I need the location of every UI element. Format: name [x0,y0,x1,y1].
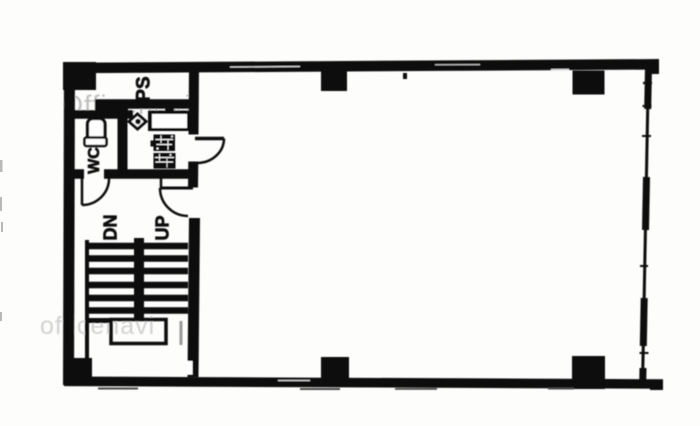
svg-text:UP: UP [153,215,173,240]
svg-text:WC: WC [86,147,103,174]
svg-text:PS: PS [134,76,155,101]
svg-text:DN: DN [101,215,121,241]
